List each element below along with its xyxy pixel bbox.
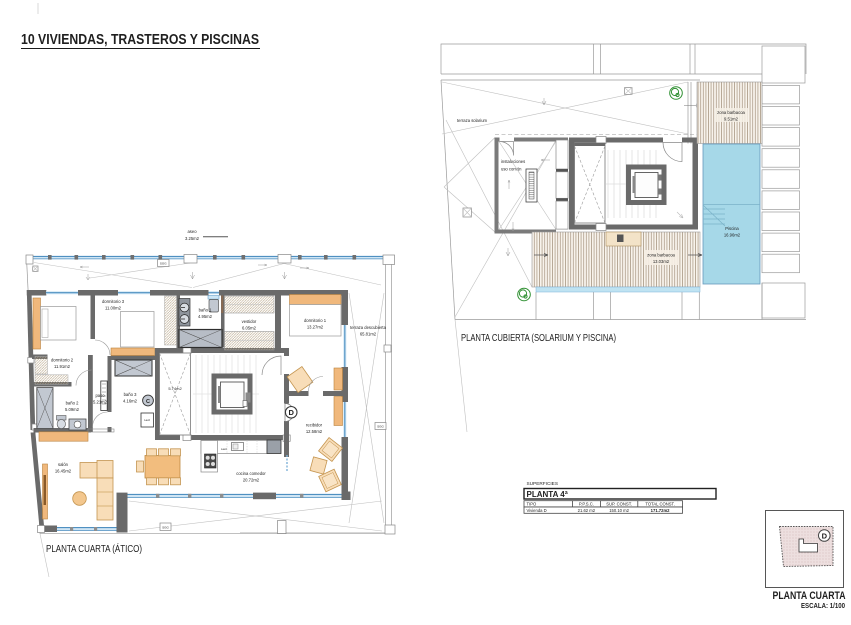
svg-text:13.03m2: 13.03m2 xyxy=(653,259,670,264)
svg-text:SUP. CONST.: SUP. CONST. xyxy=(606,502,632,507)
svg-text:21.62 m2: 21.62 m2 xyxy=(578,508,596,513)
svg-text:recibidor: recibidor xyxy=(306,423,323,428)
svg-text:6.05m2: 6.05m2 xyxy=(242,326,257,331)
svg-text:Vivienda D: Vivienda D xyxy=(527,508,547,513)
svg-text:zona barbacoa: zona barbacoa xyxy=(717,110,745,115)
svg-text:16.96m2: 16.96m2 xyxy=(724,233,741,238)
svg-text:4.95m2: 4.95m2 xyxy=(198,314,213,319)
svg-text:4.16m2: 4.16m2 xyxy=(123,399,138,404)
svg-text:uso común: uso común xyxy=(501,167,522,172)
svg-text:PLANTA CUARTA: PLANTA CUARTA xyxy=(773,590,846,602)
svg-text:SGG: SGG xyxy=(162,525,169,529)
svg-text:aseo: aseo xyxy=(187,229,197,234)
svg-text:3.25m2: 3.25m2 xyxy=(185,236,200,241)
svg-text:dormitorio 2: dormitorio 2 xyxy=(51,358,74,363)
svg-text:5.74m2: 5.74m2 xyxy=(168,386,182,391)
svg-text:salón: salón xyxy=(58,462,69,467)
svg-text:SGG: SGG xyxy=(160,262,167,266)
svg-text:11.00m2: 11.00m2 xyxy=(105,306,122,311)
svg-text:65.81m2: 65.81m2 xyxy=(360,332,377,337)
svg-text:dormitorio 1: dormitorio 1 xyxy=(304,318,327,323)
svg-text:TOTAL CONST.: TOTAL CONST. xyxy=(645,502,674,507)
svg-text:9.51m2: 9.51m2 xyxy=(724,117,739,122)
svg-text:D: D xyxy=(822,531,828,540)
svg-text:PLANTA CUBIERTA (SOLARIUM Y PI: PLANTA CUBIERTA (SOLARIUM Y PISCINA) xyxy=(461,333,616,344)
svg-text:13.27m2: 13.27m2 xyxy=(307,325,324,330)
svg-text:paso: paso xyxy=(95,393,105,398)
svg-text:20.72m2: 20.72m2 xyxy=(243,478,260,483)
svg-text:baño 3: baño 3 xyxy=(124,392,137,397)
svg-text:12.58m2: 12.58m2 xyxy=(306,429,323,434)
svg-text:10 VIVIENDAS, TRASTEROS Y PISC: 10 VIVIENDAS, TRASTEROS Y PISCINAS xyxy=(21,32,259,48)
svg-text:Lavd: Lavd xyxy=(221,447,227,451)
svg-text:cocina comedor: cocina comedor xyxy=(236,471,266,476)
svg-text:P.P.S.C.: P.P.S.C. xyxy=(579,502,594,507)
svg-text:baño 1: baño 1 xyxy=(199,308,212,313)
svg-text:11.91m2: 11.91m2 xyxy=(54,364,71,369)
svg-text:C: C xyxy=(146,399,150,405)
svg-text:SGG: SGG xyxy=(377,425,384,429)
svg-text:5.09m2: 5.09m2 xyxy=(65,407,80,412)
svg-text:16.45m2: 16.45m2 xyxy=(55,469,72,474)
svg-text:SUPERFICIES: SUPERFICIES xyxy=(527,481,559,487)
svg-text:vestidor: vestidor xyxy=(242,319,257,324)
svg-text:terraza solarium: terraza solarium xyxy=(457,118,488,123)
svg-text:terraza descubierta: terraza descubierta xyxy=(350,325,387,330)
svg-text:Lavd: Lavd xyxy=(144,418,150,422)
svg-text:PLANTA 4ª: PLANTA 4ª xyxy=(527,490,568,499)
svg-text:baño 2: baño 2 xyxy=(66,401,79,406)
svg-text:Piscina: Piscina xyxy=(725,226,739,231)
svg-text:150.10 m2: 150.10 m2 xyxy=(609,508,629,513)
svg-text:dormitorio 3: dormitorio 3 xyxy=(102,299,125,304)
svg-text:D: D xyxy=(288,408,294,417)
svg-text:PLANTA CUARTA (ÁTICO): PLANTA CUARTA (ÁTICO) xyxy=(46,544,142,555)
svg-text:ESCALA: 1/100: ESCALA: 1/100 xyxy=(801,603,845,610)
svg-text:171.72m2: 171.72m2 xyxy=(651,508,671,513)
svg-text:TIPO: TIPO xyxy=(527,502,538,507)
svg-text:5.21m2: 5.21m2 xyxy=(93,400,108,405)
svg-text:zona barbacoa: zona barbacoa xyxy=(647,253,675,258)
